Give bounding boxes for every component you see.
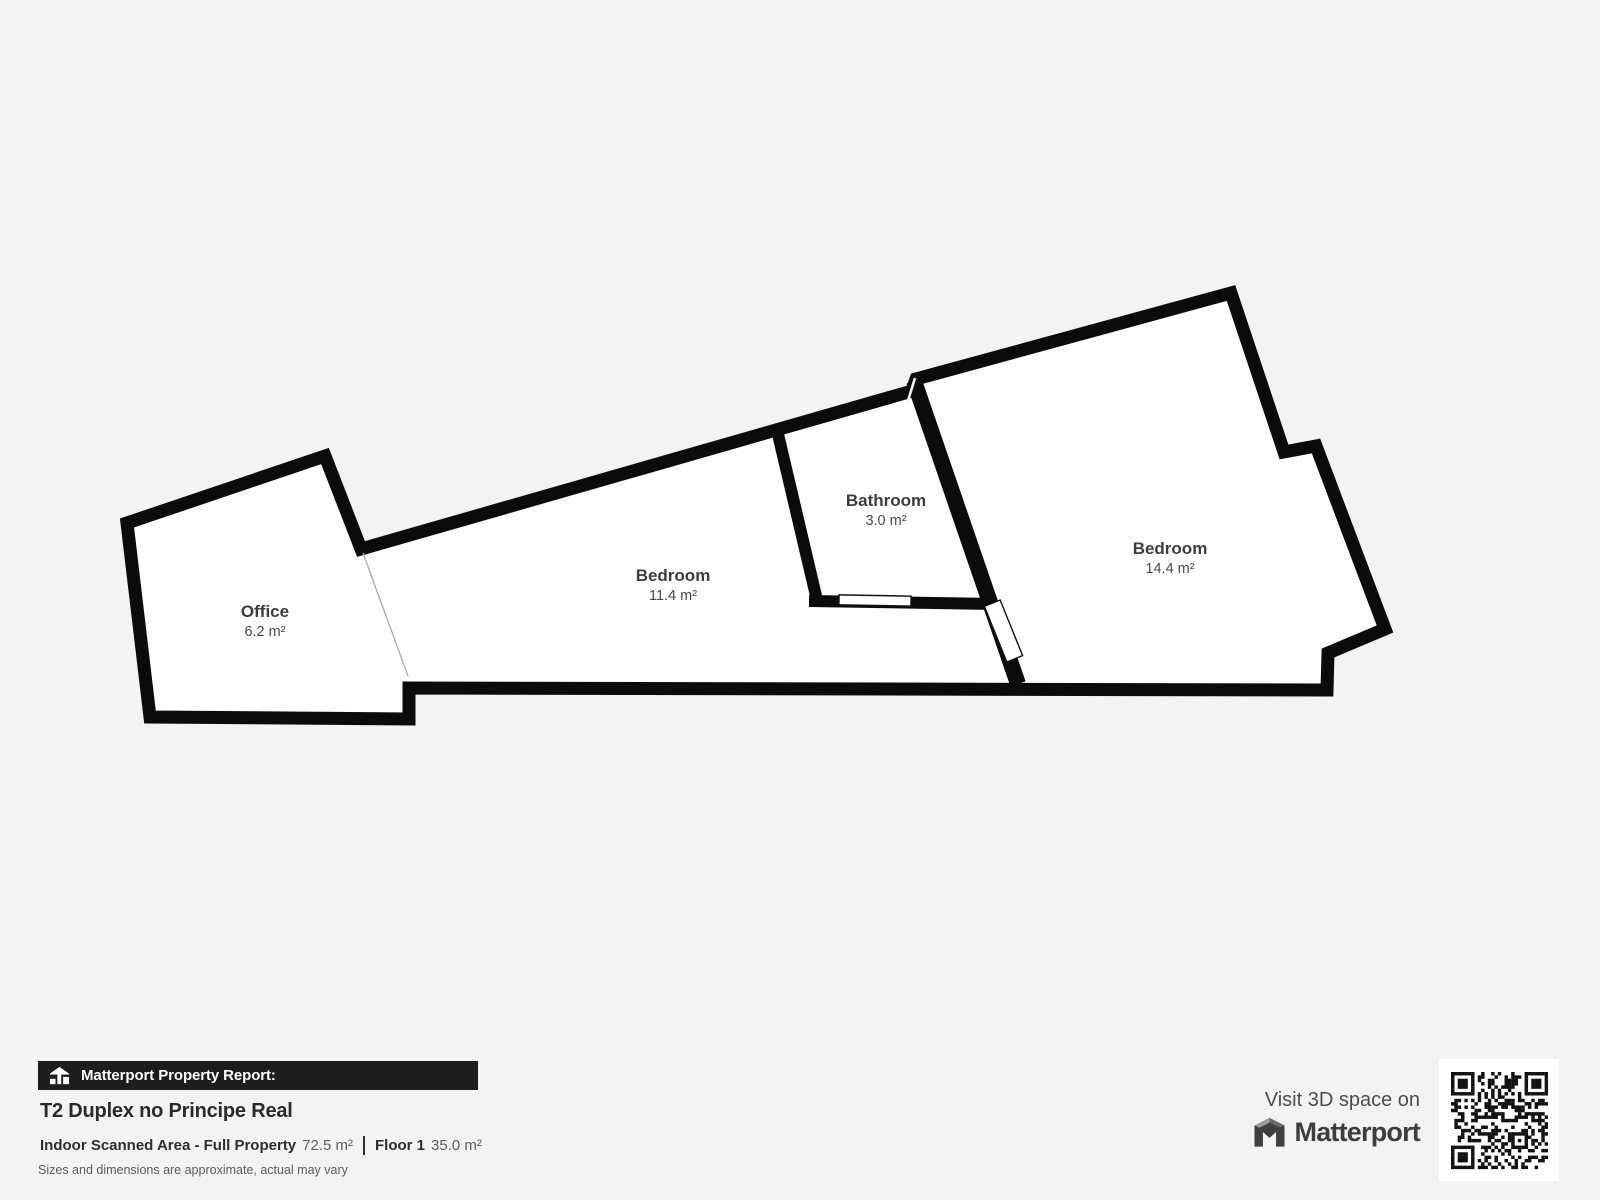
outer-walls [127,293,1385,719]
room-label-office: Office 6.2 m² [241,602,289,642]
qr-code [1439,1059,1559,1181]
room-label-bedroom-1: Bedroom 11.4 m² [636,566,711,606]
room-area: 11.4 m² [636,586,711,606]
house-chart-icon [49,1066,70,1085]
visit-3d-label: Visit 3D space on [1253,1089,1421,1112]
stat-label: Floor 1 [375,1137,425,1154]
room-name: Bedroom [1133,539,1208,559]
room-name: Bedroom [636,566,711,586]
room-label-bathroom: Bathroom 3.0 m² [846,491,926,531]
matterport-wordmark: Matterport [1295,1117,1421,1148]
room-area: 14.4 m² [1133,559,1208,579]
room-area: 6.2 m² [241,622,289,642]
room-name: Office [241,602,289,622]
floor-plan [0,0,1600,1200]
room-area: 3.0 m² [846,511,926,531]
disclaimer-text: Sizes and dimensions are approximate, ac… [38,1163,348,1177]
property-report-page: Office 6.2 m² Bedroom 11.4 m² Bathroom 3… [0,0,1600,1200]
room-label-bedroom-2: Bedroom 14.4 m² [1133,539,1208,579]
matterport-logo-icon [1253,1118,1286,1148]
bathroom-door-opening [839,595,911,606]
stat-value: 35.0 m² [431,1137,482,1154]
report-banner: Matterport Property Report: [38,1061,478,1090]
property-title: T2 Duplex no Principe Real [40,1100,293,1123]
room-name: Bathroom [846,491,926,511]
stat-divider [363,1136,365,1155]
banner-label: Matterport Property Report: [81,1067,276,1084]
stat-label: Indoor Scanned Area - Full Property [40,1137,296,1154]
promo-block: Visit 3D space on Matterport [1253,1089,1421,1148]
area-stats: Indoor Scanned Area - Full Property 72.5… [40,1136,482,1155]
stat-value: 72.5 m² [302,1137,353,1154]
